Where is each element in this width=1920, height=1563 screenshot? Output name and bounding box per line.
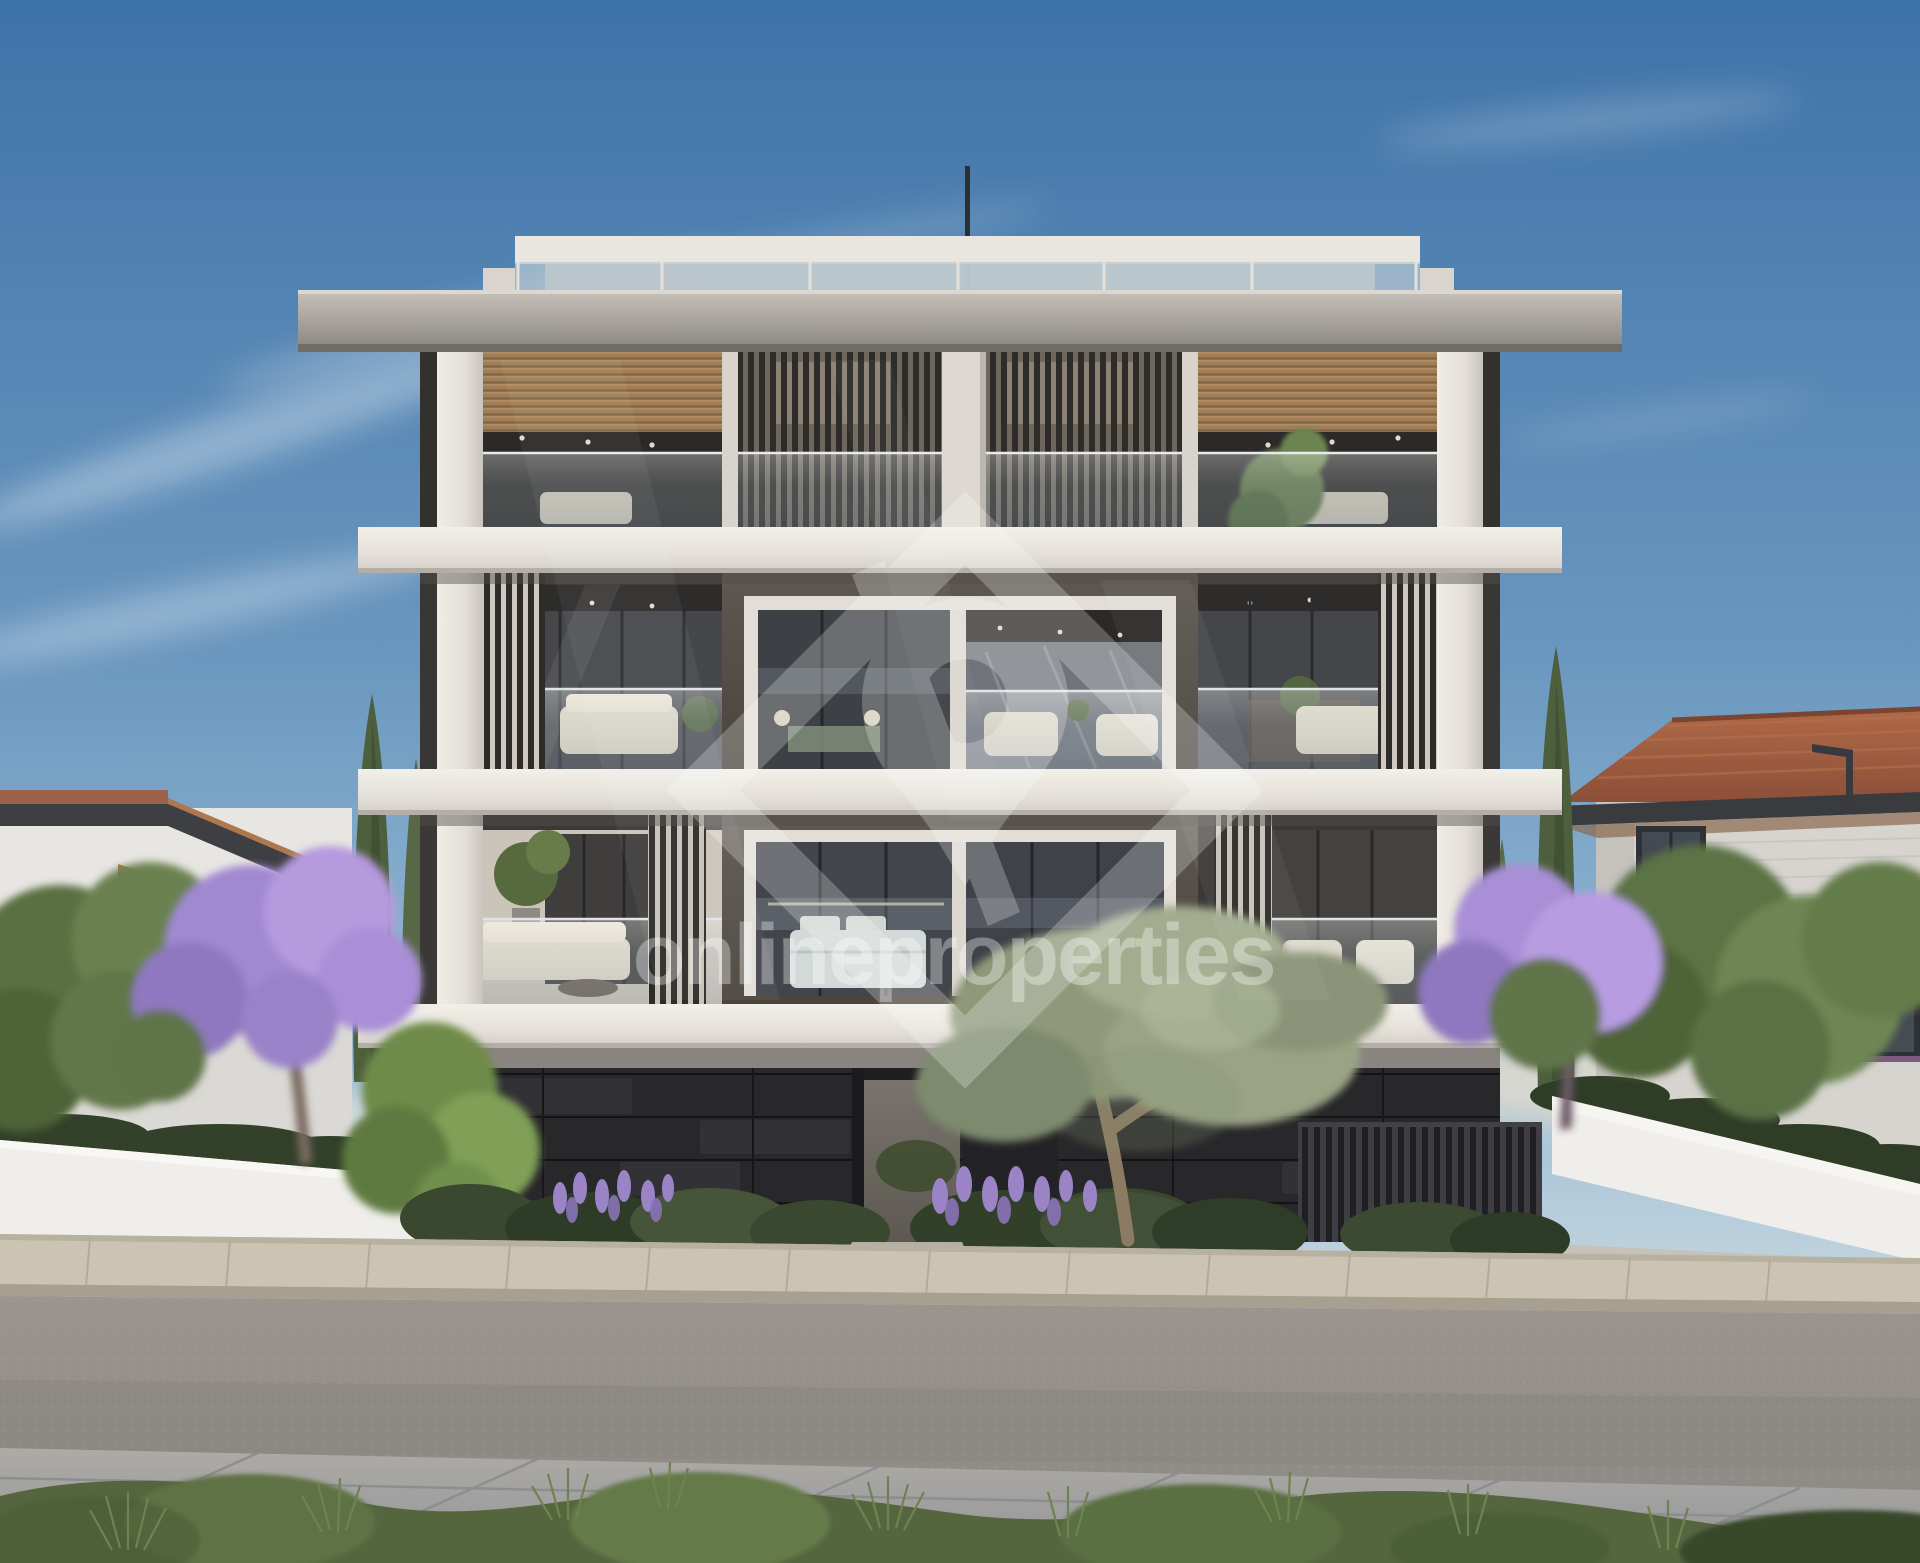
roof-slab <box>298 290 1622 352</box>
wood-soffit-right <box>1198 352 1437 432</box>
left-house-eave-upper <box>0 804 168 826</box>
column-left <box>437 352 483 1004</box>
roof-glass-railing <box>515 262 1420 294</box>
scene-canvas <box>0 0 1920 1563</box>
floor2-louvre-left <box>483 573 545 769</box>
floor3-post-left <box>722 352 738 527</box>
floor2-louvre-right <box>1378 573 1440 769</box>
roof-terrace <box>483 236 1454 294</box>
floor3-post-right <box>1182 352 1198 527</box>
left-house-tile-cap-upper <box>0 790 168 806</box>
pergola-fascia <box>515 236 1420 264</box>
render-image: onlineproperties <box>0 0 1920 1563</box>
floor3-mullion-shade <box>980 352 986 527</box>
